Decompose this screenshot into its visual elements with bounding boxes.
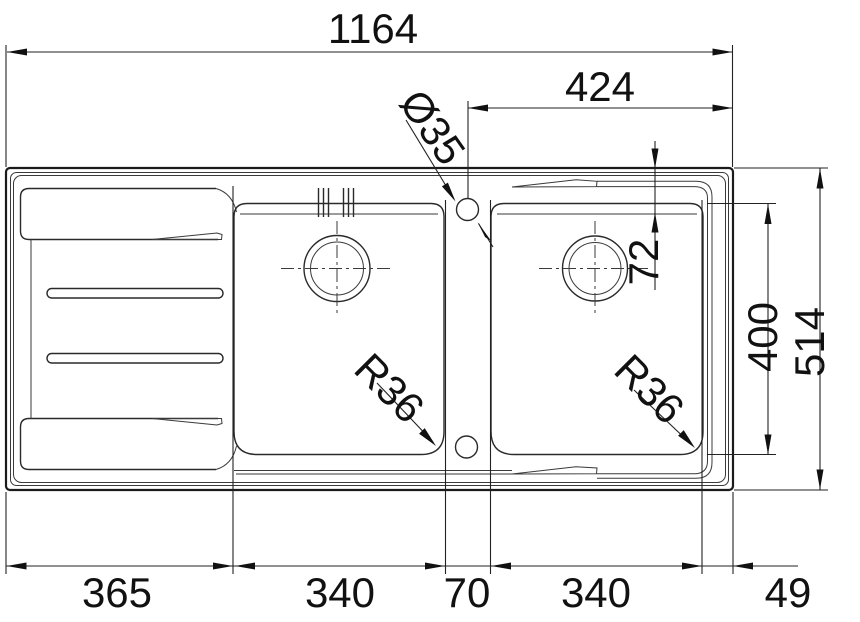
drainboard-bottom-bar bbox=[21, 419, 219, 470]
arrowhead bbox=[235, 563, 255, 570]
arrowhead bbox=[713, 49, 733, 56]
dim-424-label: 424 bbox=[565, 63, 635, 110]
radius-right-bowl: R36 bbox=[606, 345, 695, 448]
radius-r36-left-label: R36 bbox=[346, 344, 434, 432]
arrowhead bbox=[713, 105, 733, 112]
arrowhead bbox=[442, 183, 456, 202]
arrowhead bbox=[7, 563, 27, 570]
dim-tap-hole-diameter: Ø35 bbox=[391, 81, 493, 247]
radius-r36-right-label: R36 bbox=[606, 345, 694, 433]
drainboard-ridge-1 bbox=[47, 289, 223, 299]
dim-514-label: 514 bbox=[786, 307, 833, 377]
dim-rim-to-bowl: 72 bbox=[620, 141, 667, 290]
drainboard-bottom-bar-taper bbox=[152, 419, 222, 426]
arrowhead bbox=[7, 49, 27, 56]
radius-left-bowl: R36 bbox=[346, 344, 436, 446]
arrowhead bbox=[817, 169, 824, 189]
technical-drawing-canvas: 1164 424 Ø35 72 400 514 bbox=[0, 0, 860, 622]
arrowhead bbox=[652, 149, 659, 169]
arrowhead bbox=[468, 105, 488, 112]
drainboard-top-bar bbox=[21, 189, 219, 240]
arrowhead bbox=[682, 563, 702, 570]
drainboard-ridge-2 bbox=[47, 354, 223, 364]
dim-49-label: 49 bbox=[765, 569, 812, 616]
arrowhead bbox=[678, 430, 695, 448]
deck-groove-bottom bbox=[512, 467, 597, 474]
dim-1164-label: 1164 bbox=[328, 5, 418, 52]
arrowhead bbox=[652, 213, 659, 233]
arrowhead bbox=[425, 563, 445, 570]
dim-bowl-front-back: 400 bbox=[707, 204, 786, 455]
dim-400-label: 400 bbox=[739, 302, 786, 372]
arrowhead bbox=[733, 563, 753, 570]
arrowhead bbox=[817, 470, 824, 490]
sink-rim-line-inner bbox=[14, 176, 726, 483]
dim-72-label: 72 bbox=[620, 239, 667, 286]
overflow-ticks bbox=[319, 188, 354, 217]
arrowhead bbox=[765, 435, 772, 455]
arrowhead bbox=[491, 563, 511, 570]
drainboard-top-bar-taper bbox=[152, 233, 222, 240]
deck-groove-top bbox=[512, 180, 597, 187]
sink-rim-line-outer bbox=[11, 173, 729, 486]
dim-340-right-label: 340 bbox=[561, 569, 631, 616]
dim-tap-to-edge: 424 bbox=[468, 63, 733, 198]
arrowhead bbox=[765, 204, 772, 224]
dim-dia35-label: Ø35 bbox=[391, 81, 475, 173]
dim-365-label: 365 bbox=[82, 569, 152, 616]
tap-hole bbox=[457, 199, 479, 221]
sink-outer-edge bbox=[6, 168, 733, 490]
dim-340-left-label: 340 bbox=[305, 569, 375, 616]
sink-drawing-svg: 1164 424 Ø35 72 400 514 bbox=[0, 0, 860, 622]
drainboard bbox=[21, 189, 237, 470]
dim-70-label: 70 bbox=[444, 569, 491, 616]
waste-hole bbox=[456, 436, 478, 458]
sink-outline bbox=[6, 168, 733, 490]
arrowhead bbox=[213, 563, 233, 570]
